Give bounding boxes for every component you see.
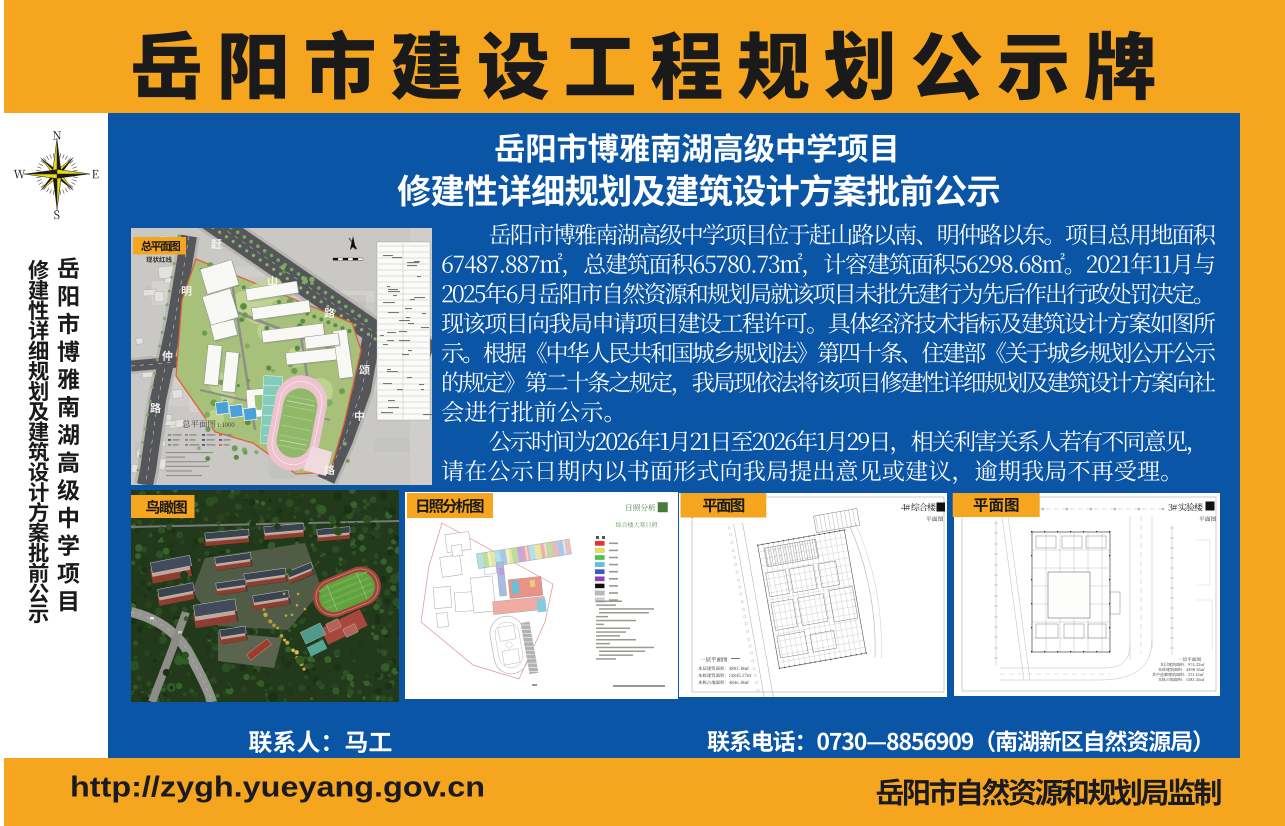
svg-text:http://zygh.yueyang.gov.cn: http://zygh.yueyang.gov.cn — [70, 772, 485, 804]
